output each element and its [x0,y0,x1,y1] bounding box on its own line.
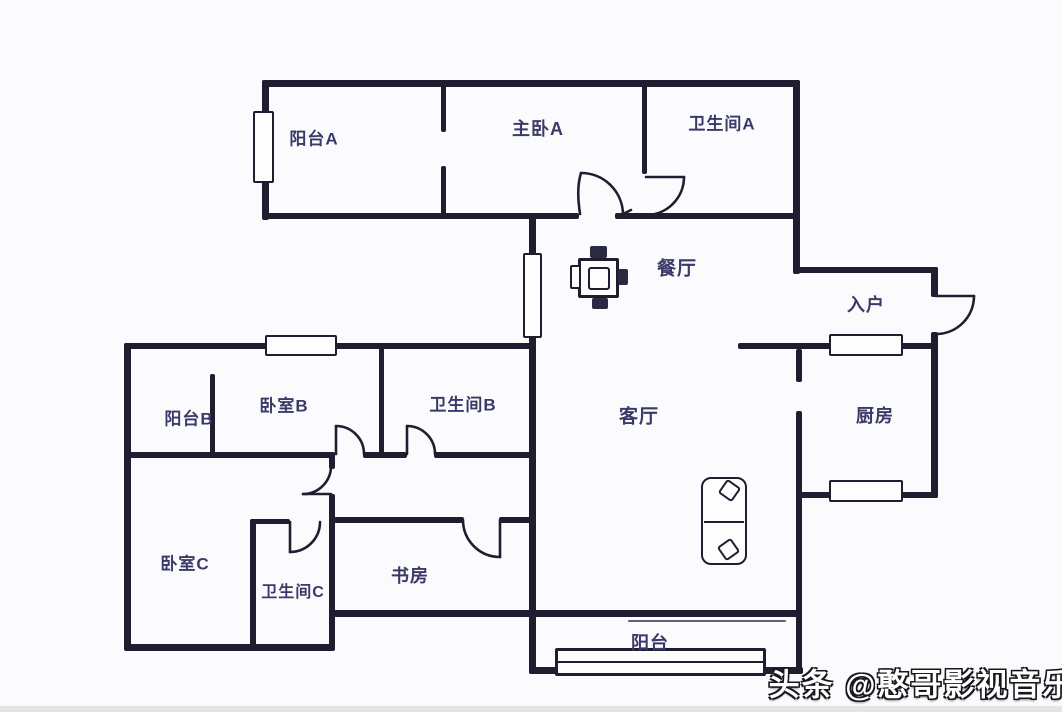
room-label-dining: 餐厅 [657,254,697,281]
room-label-balcony-b: 阳台B [164,405,213,430]
room-label-master-bedroom: 主卧A [512,115,564,141]
door-bedroom-b [336,426,364,454]
door-study [463,520,500,557]
room-label-entry: 入户 [847,291,885,317]
room-label-bedroom-b: 卧室B [259,392,308,417]
watermark-text: 头条 @憨哥影视音乐 [769,660,1062,705]
door-bathroom-a [646,177,684,215]
room-label-bathroom-c: 卫生间C [261,578,325,602]
room-label-bathroom-a: 卫生间A [688,110,755,135]
room-label-balcony-a: 阳台A [289,125,338,150]
room-label-bedroom-c: 卧室C [160,550,209,575]
door-bathroom-b [407,426,435,454]
room-label-living: 客厅 [619,402,659,429]
floor-plan: 阳台A 主卧A 卫生间A 餐厅 入户 阳台B 卧室B 卫生间B 客厅 厨房 卧室… [0,0,1062,712]
room-label-bathroom-b: 卫生间B [429,391,496,416]
room-label-balcony-south: 阳台 [631,629,669,655]
room-label-study: 书房 [391,562,429,588]
door-bathroom-c [290,522,320,552]
image-bottom-edge [0,706,1062,712]
room-label-kitchen: 厨房 [856,402,894,428]
door-master-bedroom-a [578,173,631,214]
door-layer [0,0,1062,712]
door-entry [936,296,974,334]
door-bedroom-c [303,466,331,494]
